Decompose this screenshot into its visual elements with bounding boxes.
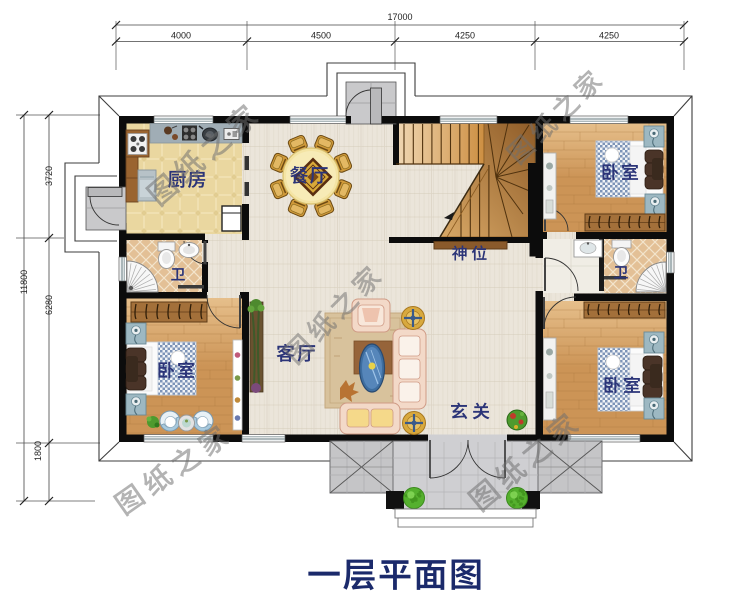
svg-text:4250: 4250 — [455, 31, 475, 41]
svg-text:1800: 1800 — [33, 441, 43, 461]
svg-text:3720: 3720 — [44, 166, 54, 186]
svg-text:4500: 4500 — [311, 31, 331, 41]
svg-text:17000: 17000 — [387, 12, 412, 22]
svg-text:4000: 4000 — [171, 31, 191, 41]
svg-text:11800: 11800 — [19, 270, 29, 294]
svg-text:4250: 4250 — [599, 31, 619, 41]
svg-text:6280: 6280 — [44, 295, 54, 315]
